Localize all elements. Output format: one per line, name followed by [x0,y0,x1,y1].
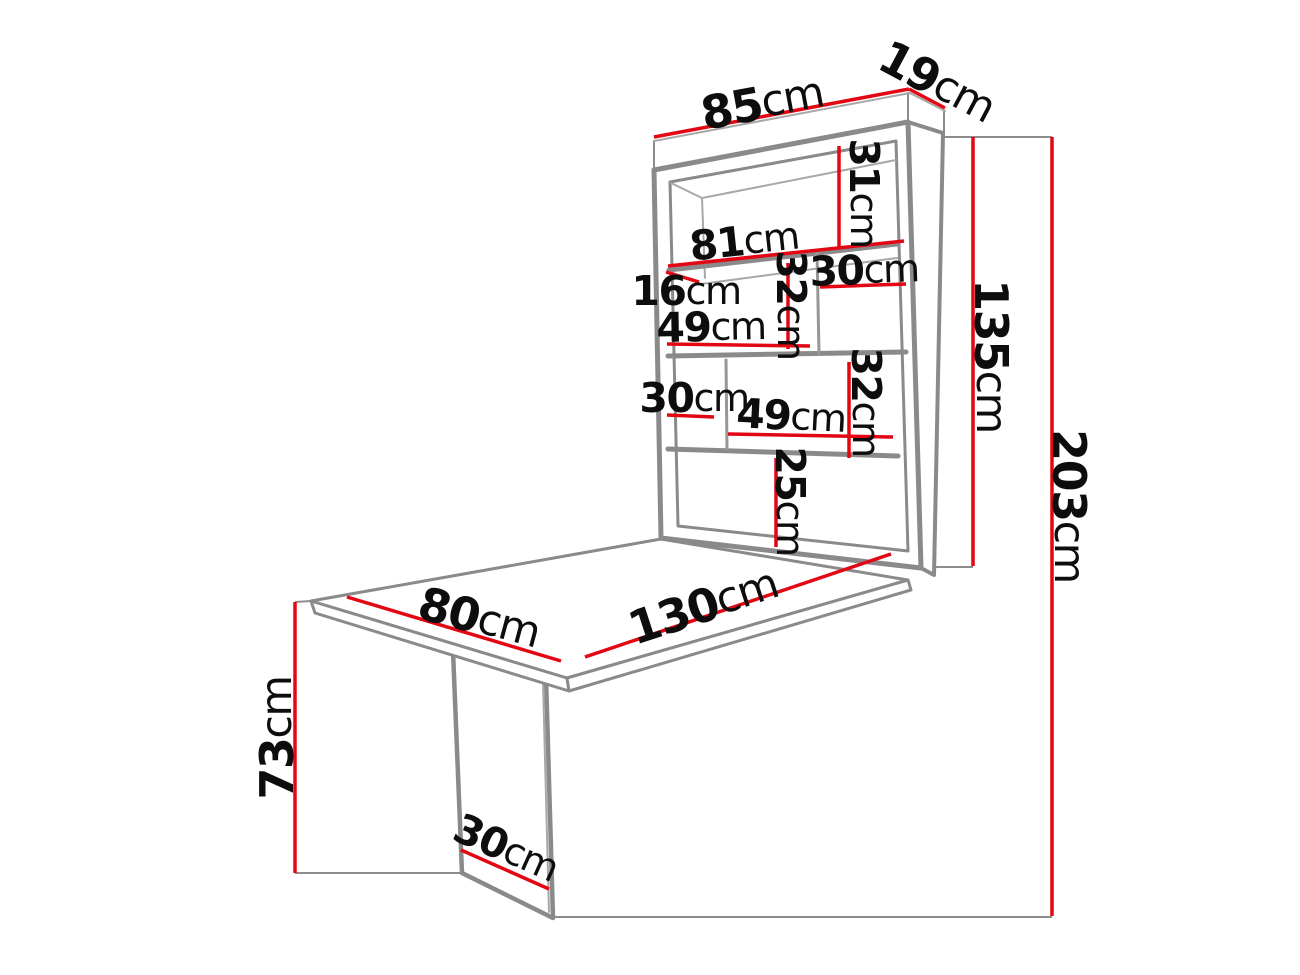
dim-label-73: 73cm [250,676,304,799]
dim-label-30-mid: 30cm [639,374,748,422]
dim-label-32-right: 32cm [842,347,890,456]
diagram-canvas: 85cm 19cm 31cm 81cm 30cm 16cm 49cm 32cm … [0,0,1300,975]
table-assembly [311,539,911,918]
dim-label-203: 203cm [1042,429,1096,583]
dim-label-49-top: 49cm [656,302,766,352]
dimension-diagram: 85cm 19cm 31cm 81cm 30cm 16cm 49cm 32cm … [0,0,1300,975]
dim-label-19: 19cm [870,29,1004,135]
ext-line-table-corner [295,601,311,602]
dim-label-32-top: 32cm [767,250,815,359]
dim-label-85: 85cm [697,65,828,141]
dim-label-31: 31cm [840,138,888,247]
dim-label-30-top: 30cm [809,244,920,296]
dim-label-49-mid: 49cm [735,389,847,443]
dim-label-25: 25cm [766,446,814,555]
dim-label-135: 135cm [964,279,1018,433]
